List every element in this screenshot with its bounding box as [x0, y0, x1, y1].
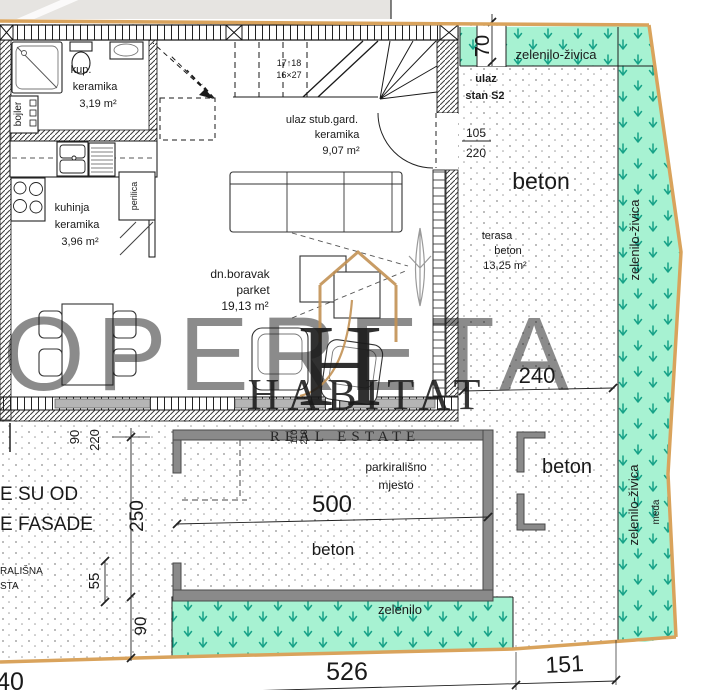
toilet-tank — [70, 42, 92, 51]
bathroom-area: 3,19 m² — [79, 98, 117, 110]
entry-hall-area: 9,07 m² — [322, 145, 360, 157]
washer-label: perilica — [129, 182, 139, 211]
kitchen-finish: keramika — [55, 219, 101, 231]
green-bottom-label: zelenilo — [378, 602, 422, 617]
sofa — [230, 172, 402, 232]
stairs-note-1: 17↑18 — [277, 58, 302, 68]
note-cut-2: E FASADE — [0, 514, 93, 535]
dim-90-south: 90 — [131, 617, 150, 636]
kitchen-name: kuhinja — [55, 202, 91, 214]
entry-hall-finish: keramika — [315, 129, 361, 141]
dim-500: 500 — [312, 491, 352, 518]
dim-105: 105 — [466, 126, 486, 140]
parking-space-label-2: mjesto — [378, 478, 414, 492]
parking-space-label-1: parkirališno — [365, 460, 427, 474]
note-cut-4: STA — [0, 581, 19, 592]
floor-plan-drawing: zelenilo-živica zelenilo-živica zelenilo… — [0, 0, 701, 690]
right-beton-label: beton — [542, 456, 592, 478]
boundary-label: međa — [651, 499, 662, 524]
terrace-beton-label: beton — [512, 168, 570, 194]
dim-55: 55 — [86, 573, 103, 590]
terrace-name: terasa — [482, 230, 513, 242]
dim-70: 70 — [472, 35, 494, 57]
boiler-label: bojler — [13, 101, 24, 126]
dim-90-window: 90 — [67, 430, 82, 444]
bathroom-finish: keramika — [73, 81, 119, 93]
kitchen-area: 3,96 m² — [61, 236, 99, 248]
dim-151: 151 — [545, 650, 585, 678]
parking-beton-label: beton — [312, 540, 355, 559]
watermark-tagline: REAL ESTATE — [270, 429, 420, 445]
dim-40-partial: 40 — [0, 668, 24, 690]
entrance-label-2: stan S2 — [465, 90, 504, 102]
green-strip-bottom — [172, 597, 513, 656]
living-name: dn.boravak — [210, 267, 270, 281]
note-cut-1: E SU OD — [0, 484, 78, 505]
bathroom-name: kup. — [71, 64, 92, 76]
watermark-brand: HABITAT — [248, 370, 489, 419]
hedge-right-upper-label: zelenilo-živica — [627, 199, 642, 281]
note-cut-3: RALIŠNA — [0, 564, 43, 577]
entrance-label-1: ulaz — [475, 73, 497, 85]
dim-220-window: 220 — [87, 429, 102, 451]
hedge-top-label: zelenilo-živica — [516, 47, 598, 62]
stairs-note-2: 16×27 — [276, 70, 301, 80]
wall-bath-stairs — [149, 40, 157, 130]
dim-250: 250 — [127, 500, 148, 532]
entry-hall-name: ulaz stub.gard. — [286, 114, 358, 126]
hedge-right-lower-label: zelenilo-živica — [626, 464, 641, 546]
dim-220: 220 — [466, 146, 486, 160]
terrace-finish: beton — [494, 245, 522, 257]
dim-line-bottom — [130, 681, 616, 690]
dim-526: 526 — [326, 658, 368, 686]
floor-plan-page: zelenilo-živica zelenilo-živica zelenilo… — [0, 0, 701, 690]
wall-east-upper — [437, 40, 458, 113]
living-finish: parket — [236, 283, 270, 297]
terrace-area: 13,25 m² — [483, 260, 527, 272]
